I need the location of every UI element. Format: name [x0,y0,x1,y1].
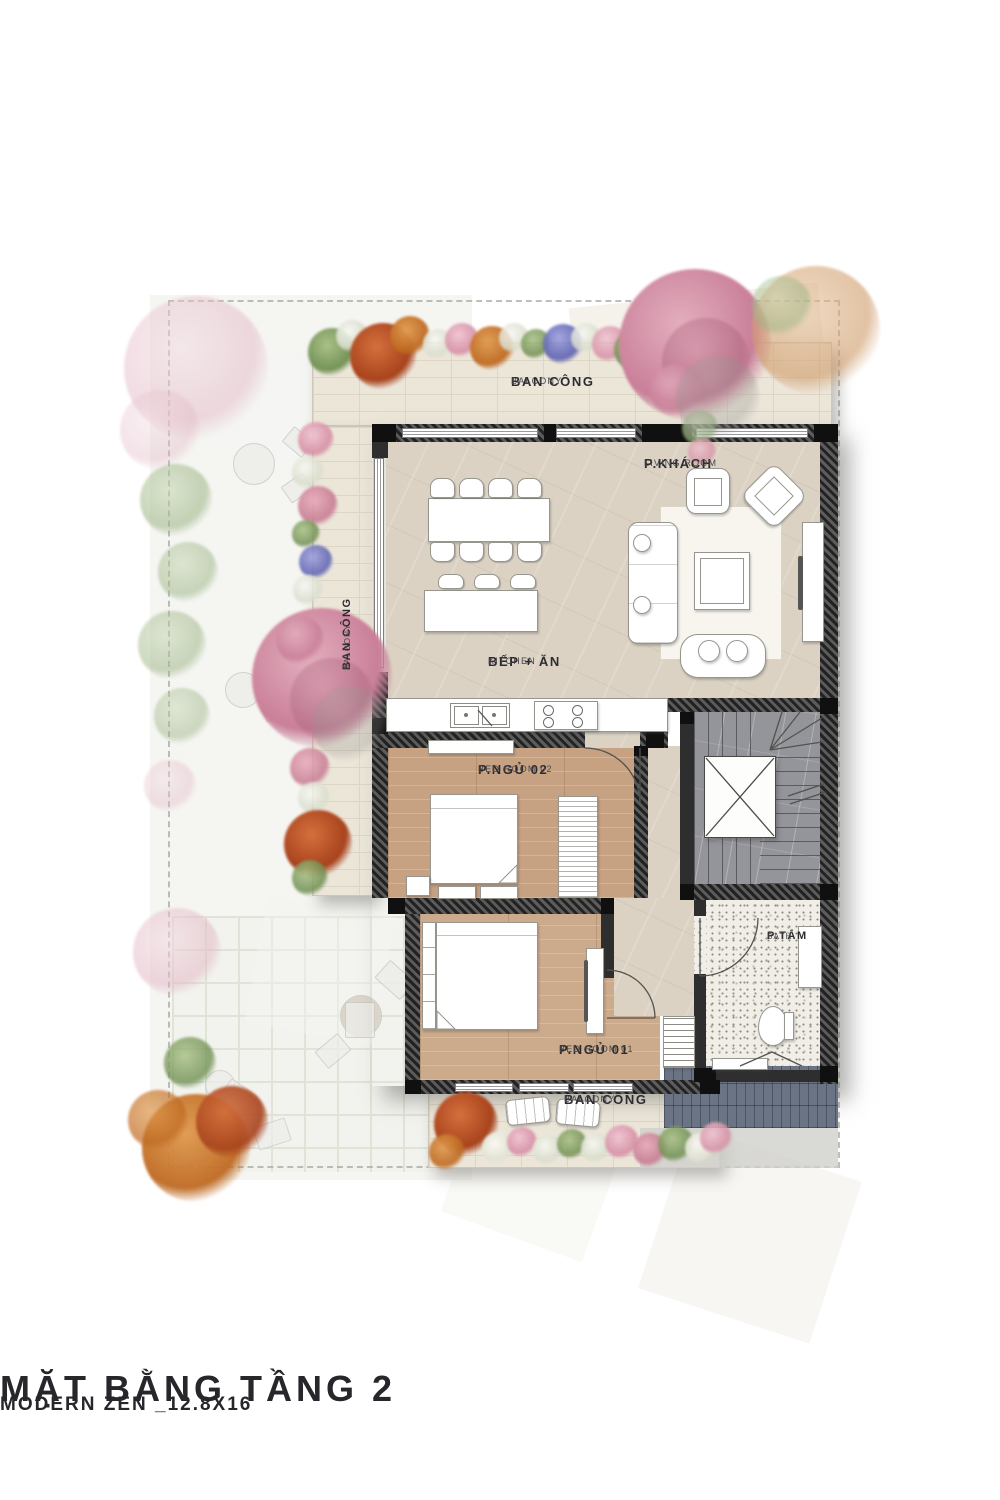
bedroom2-nightstand [406,876,430,896]
label-kitchen-en: KITCHEN [488,656,536,666]
label-balcony-top-en: BALCONY [511,376,562,386]
bedroom1-cabinet [586,948,604,1034]
wall-column [634,746,648,756]
wall-column [820,1066,838,1082]
label-bedroom-02-en: BED ROOM 02 [478,764,553,774]
bar-stool [438,574,464,589]
label-balcony-bottom-en: BALCONY [564,1094,615,1104]
wall-segment [388,898,601,914]
ottoman-cushion-2 [726,640,748,662]
floor-plan-drawing: BAN CÔNG BALCONY P.KHÁCH LIVING ROOM BẾP… [0,0,1000,1500]
flower-bush-redorange [196,1086,268,1158]
kitchen-counter [386,698,668,732]
bedroom1-headboard [422,922,436,1030]
flower-bush-pink [700,1122,732,1154]
flower-bush-green [292,520,320,548]
flower-bush-greenfade [138,611,206,679]
wall-segment [634,746,648,898]
tv-screen [798,556,803,610]
kitchen-island [424,590,538,632]
dining-chair [517,542,542,562]
wall-column [544,424,556,442]
wall-column [820,698,838,714]
flower-bush-green [164,1037,216,1089]
dining-chair [430,478,455,498]
label-living-room-en: LIVING ROOM [644,458,717,468]
bedroom2-bed-drawer-2 [480,886,518,899]
ottoman-cushion-1 [698,640,720,662]
window [519,1083,569,1092]
wall-column [814,424,838,442]
ottoman [680,634,766,678]
bar-stool [510,574,536,589]
sofa-cushion-1 [633,534,651,552]
burner-2 [572,705,583,716]
doorway-floor-bedroom2 [585,732,640,748]
dining-chair [488,478,513,498]
label-balcony-left-en: BALCONY [343,623,352,670]
wall-column [405,1080,421,1094]
flower-bush-green [292,860,328,896]
bedroom2-wardrobe [558,796,598,898]
wall-segment [648,698,838,712]
wall-segment [680,712,694,898]
flower-bush-pinkfade [144,760,196,812]
armchair-seat [694,478,722,506]
flower-bush-pinkfade [120,390,200,470]
toilet-tank [784,1012,794,1040]
flower-bush-greenfade [140,464,212,536]
wall-column [820,884,838,900]
tv-console [802,522,824,642]
flower-bush-orange [429,1134,465,1170]
flower-bush-orange [128,1090,188,1150]
flower-bush-pinkfade [133,908,221,996]
tree-shadow [676,356,760,440]
wall-column [372,424,396,442]
hall-floor-lower [614,898,694,1016]
wall-segment [372,748,388,898]
bath-bench [712,1058,768,1070]
dining-chair [459,478,484,498]
burner-1 [543,705,554,716]
wall-segment [405,914,420,1080]
dining-chair [488,542,513,562]
burner-4 [572,717,583,728]
label-bedroom-01-en: BED ROOM 01 [559,1044,634,1054]
bedroom2-dresser [428,740,514,754]
bathroom-door-threshold [694,916,706,974]
wall-column [694,1068,716,1082]
wall-column [700,1080,720,1094]
bedroom2-bed [430,794,518,884]
window [402,428,538,438]
stair-void [704,756,776,838]
bedroom2-bed-drawer-1 [438,886,476,899]
dining-chair [459,542,484,562]
window [573,1083,633,1092]
coffee-table-inner [700,558,744,604]
flower-bush-greenfade [154,688,210,744]
wall-segment [372,442,388,458]
dining-chair [430,542,455,562]
wall-column [388,898,405,914]
wall-column [646,732,664,748]
wall-segment [694,900,706,916]
flower-bush-pinktree [276,616,324,664]
hall-mini-stair [663,1016,695,1068]
wall-segment [694,974,706,1074]
flower-bush-purple [299,545,333,579]
sofa-cushion-2 [633,596,651,614]
flower-bush-white [293,575,323,605]
flower-bush-greenfade [752,276,812,336]
wall-column [601,898,614,914]
flower-bush-white [292,456,324,488]
wall-column [680,712,694,724]
label-bathroom-en: BATH [767,932,793,941]
wall-column [680,884,694,900]
hall-floor-upper [648,746,680,898]
burner-3 [543,717,554,728]
window [455,1083,513,1092]
bar-stool [474,574,500,589]
flower-bush-greenfade [158,542,218,602]
tree-shadow [312,686,388,762]
dining-table [428,498,550,542]
bedroom1-bed [436,922,538,1030]
dining-chair [517,478,542,498]
wall-segment [680,884,838,900]
flower-bush-pink [298,422,334,458]
window [556,428,636,438]
balcony-lounge-chair-1 [505,1096,551,1126]
sink-drain-right [492,713,496,717]
sink-drain-left [464,713,468,717]
bedroom1-tv [584,960,588,1022]
plan-subtitle: MODERN ZEN _12.8X16 [0,1394,252,1416]
